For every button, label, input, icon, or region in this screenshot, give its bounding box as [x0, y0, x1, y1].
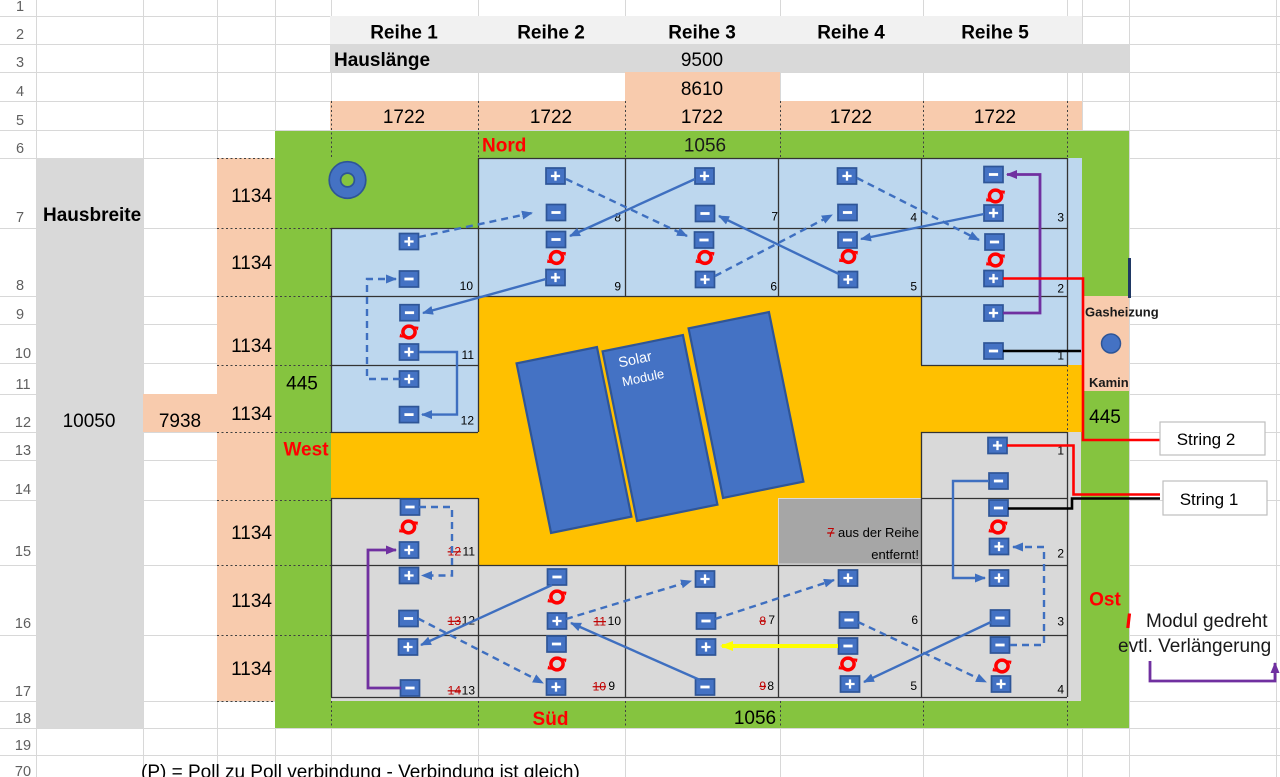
svg-text:2: 2 [16, 27, 24, 43]
svg-text:9: 9 [614, 280, 621, 294]
svg-text:9: 9 [608, 679, 615, 693]
svg-text:Reihe 5: Reihe 5 [961, 23, 1029, 44]
svg-text:1134: 1134 [231, 336, 272, 357]
svg-text:445: 445 [286, 374, 318, 395]
svg-text:7938: 7938 [159, 411, 201, 432]
svg-text:Süd: Süd [533, 709, 569, 730]
svg-text:1134: 1134 [231, 253, 272, 274]
svg-text:7: 7 [768, 613, 775, 627]
svg-text:7: 7 [771, 210, 778, 224]
svg-text:(P) = Poll zu Poll verbindung: (P) = Poll zu Poll verbindung - Verbindu… [141, 762, 580, 777]
svg-text:9: 9 [16, 307, 24, 323]
svg-text:8610: 8610 [681, 79, 723, 100]
svg-text:8: 8 [767, 679, 774, 693]
svg-text:3: 3 [16, 55, 24, 71]
svg-text:6: 6 [16, 141, 24, 157]
svg-text:14: 14 [15, 482, 31, 498]
svg-text:1056: 1056 [734, 708, 776, 729]
svg-text:11: 11 [594, 614, 607, 628]
svg-text:3: 3 [1057, 615, 1064, 629]
svg-text:2: 2 [1057, 282, 1064, 296]
svg-text:Reihe 2: Reihe 2 [517, 23, 585, 44]
svg-text:Gasheizung: Gasheizung [1085, 305, 1159, 320]
svg-text:Ost: Ost [1089, 590, 1121, 611]
svg-text:1722: 1722 [974, 107, 1016, 128]
svg-text:Reihe 3: Reihe 3 [668, 23, 736, 44]
svg-text:1134: 1134 [231, 659, 272, 680]
svg-text:1722: 1722 [830, 107, 872, 128]
svg-text:1722: 1722 [383, 107, 425, 128]
svg-text:1056: 1056 [684, 136, 726, 157]
svg-text:13: 13 [448, 614, 462, 628]
svg-text:18: 18 [15, 711, 31, 727]
svg-text:4: 4 [910, 211, 917, 225]
svg-text:4: 4 [1057, 683, 1064, 697]
svg-text:String 2: String 2 [1177, 430, 1236, 449]
svg-text:Modul gedreht: Modul gedreht [1146, 611, 1268, 632]
svg-text:5: 5 [910, 280, 917, 294]
svg-text:9: 9 [759, 679, 766, 693]
svg-text:11: 11 [15, 377, 30, 393]
svg-text:445: 445 [1089, 407, 1121, 428]
svg-text:12: 12 [15, 415, 31, 431]
svg-text:10: 10 [15, 346, 31, 362]
svg-text:19: 19 [15, 738, 31, 754]
svg-text:70: 70 [15, 764, 31, 777]
svg-text:String 1: String 1 [1180, 490, 1239, 509]
svg-text:1: 1 [16, 0, 24, 15]
svg-text:10: 10 [608, 614, 622, 628]
svg-text:7: 7 [16, 210, 24, 226]
svg-text:10050: 10050 [63, 411, 116, 432]
svg-text:12: 12 [461, 414, 475, 428]
svg-text:Hausbreite: Hausbreite [43, 205, 141, 226]
svg-text:11: 11 [463, 545, 476, 559]
svg-text:1134: 1134 [231, 186, 272, 207]
svg-text:6: 6 [911, 613, 918, 627]
svg-text:15: 15 [15, 544, 31, 560]
svg-text:5: 5 [910, 679, 917, 693]
svg-text:1134: 1134 [231, 523, 272, 544]
svg-text:10: 10 [460, 279, 474, 293]
svg-text:4: 4 [16, 84, 24, 100]
svg-text:entfernt!: entfernt! [871, 547, 919, 562]
svg-text:2: 2 [1057, 547, 1064, 561]
svg-text:1722: 1722 [681, 107, 723, 128]
svg-text:14: 14 [448, 684, 462, 698]
svg-text:11: 11 [462, 348, 475, 362]
svg-text:1722: 1722 [530, 107, 572, 128]
svg-text:evtl. Verlängerung: evtl. Verlängerung [1118, 636, 1271, 657]
svg-text:West: West [283, 440, 329, 461]
svg-text:Hauslänge: Hauslänge [334, 50, 430, 71]
svg-text:17: 17 [15, 684, 31, 700]
svg-text:Nord: Nord [482, 136, 526, 157]
svg-text:6: 6 [770, 280, 777, 294]
svg-text:1134: 1134 [231, 404, 272, 425]
svg-text:Reihe 4: Reihe 4 [817, 23, 885, 44]
svg-text:7 aus der Reihe: 7 aus der Reihe [827, 525, 919, 540]
svg-text:5: 5 [16, 113, 24, 129]
svg-text:8: 8 [759, 614, 766, 628]
svg-text:3: 3 [1057, 211, 1064, 225]
svg-text:13: 13 [15, 443, 31, 459]
svg-text:8: 8 [16, 278, 24, 294]
svg-text:12: 12 [448, 545, 462, 559]
svg-text:9500: 9500 [681, 50, 723, 71]
svg-text:Reihe 1: Reihe 1 [370, 23, 438, 44]
svg-text:13: 13 [462, 684, 476, 698]
svg-text:16: 16 [15, 616, 31, 632]
svg-text:1134: 1134 [231, 591, 272, 612]
svg-text:Kamin: Kamin [1089, 375, 1129, 390]
svg-text:10: 10 [593, 679, 607, 693]
